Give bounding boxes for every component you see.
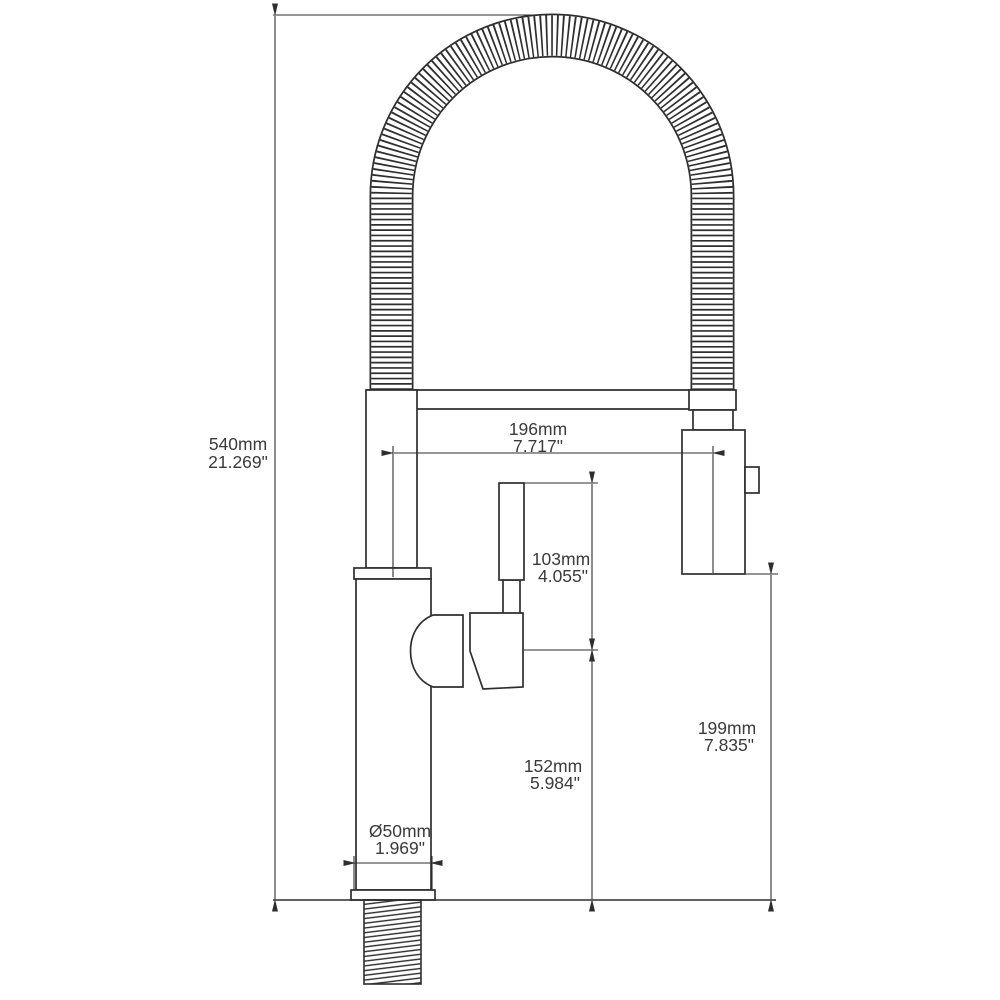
handle-base-block (470, 613, 523, 689)
spray-head-neck (693, 410, 733, 430)
dim-sprayhead-to-deck-inch: 7.835" (704, 735, 754, 755)
faucet-technical-drawing: 540mm 21.269" 196mm 7.717" 103mm 4.055" … (0, 0, 1000, 1000)
dim-overall-height-inch: 21.269" (208, 452, 268, 472)
handle-dome (411, 615, 464, 687)
dim-overall-height-mm: 540mm (209, 434, 267, 454)
dim-base-diameter-inch: 1.969" (375, 838, 425, 858)
dim-spout-reach-inch: 7.717" (513, 436, 563, 456)
spout-bar (366, 390, 735, 409)
drawing-canvas: 540mm 21.269" 196mm 7.717" 103mm 4.055" … (0, 0, 1000, 1000)
spring-hose (392, 35, 713, 390)
dim-sprayhead-to-deck: 199mm 7.835" (698, 574, 778, 899)
dim-handle-to-deck: 152mm 5.984" (524, 651, 592, 899)
spray-head-button (745, 467, 759, 493)
handle-lever (499, 483, 524, 580)
base-flange (351, 890, 435, 900)
spout-pipe (366, 390, 417, 568)
handle-stem (503, 580, 520, 614)
dim-handle-height-inch: 4.055" (538, 566, 588, 586)
dim-handle-height: 103mm 4.055" (523, 483, 598, 650)
threaded-shank (364, 900, 421, 984)
spray-hose-collar (689, 390, 736, 410)
dim-handle-to-deck-inch: 5.984" (530, 773, 580, 793)
